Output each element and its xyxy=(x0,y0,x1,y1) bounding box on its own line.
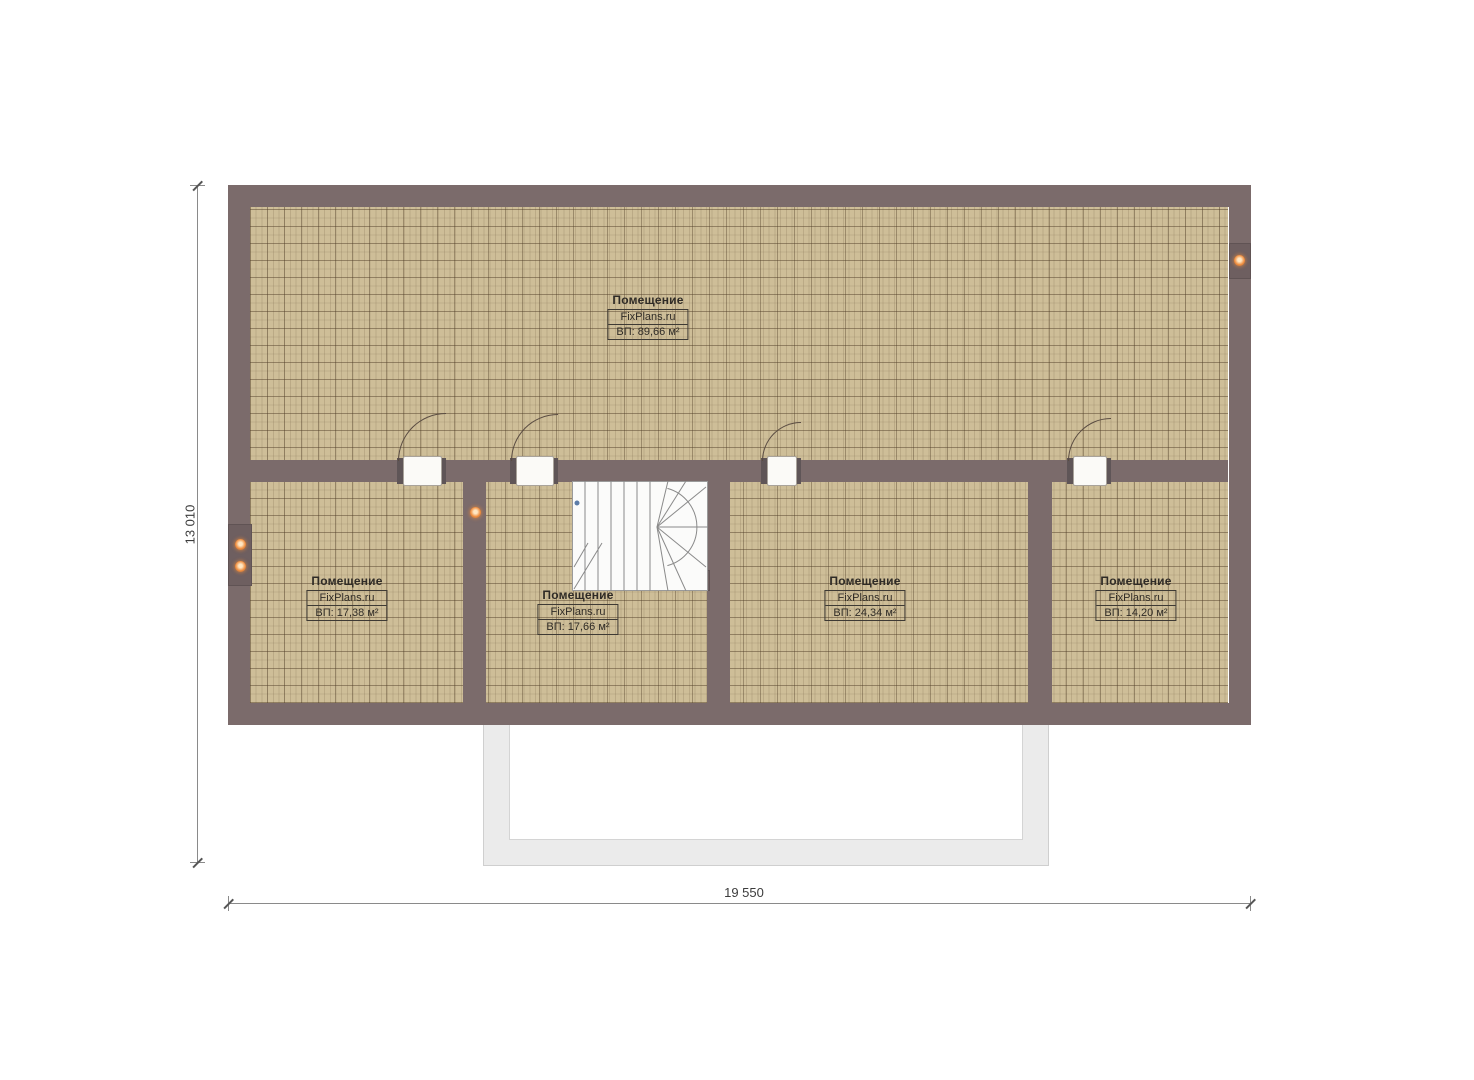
dimension-label-width: 19 550 xyxy=(714,885,774,900)
room-brand: FixPlans.ru xyxy=(538,605,617,620)
room-area: ВП: 89,66 м² xyxy=(608,325,687,339)
wall-top xyxy=(228,185,1251,207)
room-label-2: Помещение FixPlans.ru ВП: 17,66 м² xyxy=(537,588,618,635)
room-brand: FixPlans.ru xyxy=(1096,591,1175,606)
room-name: Помещение xyxy=(306,574,387,588)
light-dot-icon xyxy=(470,507,481,518)
wall-left xyxy=(228,207,250,703)
wall-vertical-2 xyxy=(707,482,730,703)
room-area: ВП: 17,66 м² xyxy=(538,620,617,634)
room-brand: FixPlans.ru xyxy=(608,310,687,325)
stairs xyxy=(572,481,708,591)
dimension-label-height: 13 010 xyxy=(183,503,198,547)
room-info-box: FixPlans.ru ВП: 24,34 м² xyxy=(824,590,905,621)
floor-plan-canvas: Помещение FixPlans.ru ВП: 89,66 м² Помещ… xyxy=(0,0,1474,1080)
left-wall-fixture xyxy=(228,524,252,586)
light-dot-icon xyxy=(235,561,246,572)
room-area: ВП: 14,20 м² xyxy=(1096,606,1175,620)
room-info-box: FixPlans.ru ВП: 17,66 м² xyxy=(537,604,618,635)
room-info-box: FixPlans.ru ВП: 17,38 м² xyxy=(306,590,387,621)
terrace-inner xyxy=(509,725,1023,840)
room-label-1: Помещение FixPlans.ru ВП: 17,38 м² xyxy=(306,574,387,621)
dimension-line-bottom xyxy=(228,903,1251,904)
wall-right xyxy=(1229,207,1251,703)
light-dot-icon xyxy=(235,539,246,550)
room-info-box: FixPlans.ru ВП: 14,20 м² xyxy=(1095,590,1176,621)
stairs-drawing xyxy=(572,481,708,591)
room-info-box: FixPlans.ru ВП: 89,66 м² xyxy=(607,309,688,340)
room-brand: FixPlans.ru xyxy=(825,591,904,606)
light-dot-icon xyxy=(1234,255,1245,266)
room-area: ВП: 24,34 м² xyxy=(825,606,904,620)
room-area: ВП: 17,38 м² xyxy=(307,606,386,620)
room-brand: FixPlans.ru xyxy=(307,591,386,606)
room-label-4: Помещение FixPlans.ru ВП: 14,20 м² xyxy=(1095,574,1176,621)
wall-bottom xyxy=(228,703,1251,725)
room-name: Помещение xyxy=(537,588,618,602)
room-name: Помещение xyxy=(1095,574,1176,588)
wall-vertical-3 xyxy=(1028,482,1052,703)
room-label-3: Помещение FixPlans.ru ВП: 24,34 м² xyxy=(824,574,905,621)
room-name: Помещение xyxy=(607,293,688,307)
room-label-main: Помещение FixPlans.ru ВП: 89,66 м² xyxy=(607,293,688,340)
room-name: Помещение xyxy=(824,574,905,588)
